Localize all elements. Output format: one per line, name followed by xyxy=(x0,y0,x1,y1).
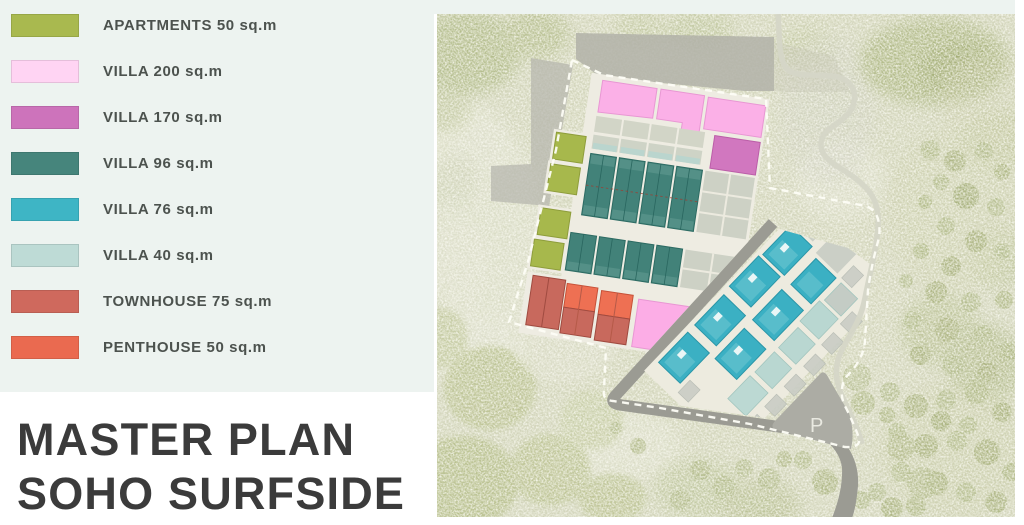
svg-text:P: P xyxy=(810,415,823,437)
